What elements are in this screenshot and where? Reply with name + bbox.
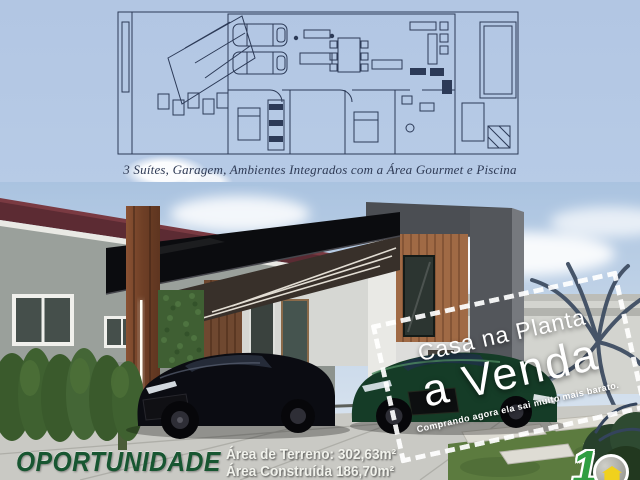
glass-door: [282, 300, 308, 364]
real-estate-ad: 3 Suítes, Garagem, Ambientes Integrados …: [0, 0, 640, 480]
house-icon: [602, 466, 622, 480]
opportunity-headline: OPORTUNIDADE: [16, 446, 221, 478]
floor-plan: [110, 8, 522, 160]
plan-car-icon: [233, 52, 287, 74]
logo-circle: [593, 454, 629, 480]
agency-logo: 1: [572, 444, 640, 480]
vertical-garden: [158, 290, 204, 368]
floor-plan-caption: 3 Suítes, Garagem, Ambientes Integrados …: [0, 162, 640, 178]
built-area-text: Área Construída 186,70m²: [226, 464, 396, 480]
area-info: Área de Terreno: 302,63m² Área Construíd…: [226, 447, 396, 480]
neighbor-window: [12, 294, 74, 346]
land-area-text: Área de Terreno: 302,63m²: [226, 447, 396, 464]
